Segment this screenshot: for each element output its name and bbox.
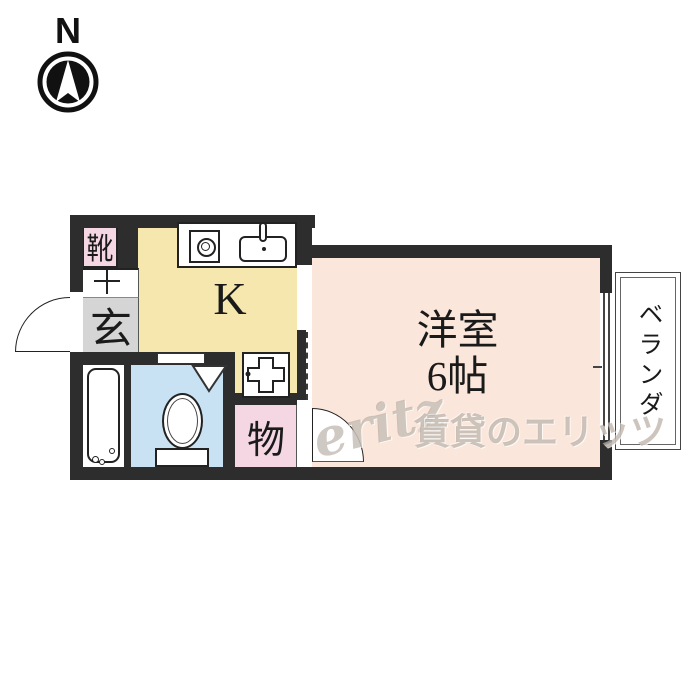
washing-machine-pan-icon xyxy=(242,352,290,398)
wall-right-upper xyxy=(600,245,612,293)
toilet-tank-icon xyxy=(155,448,209,467)
kitchen-label: K xyxy=(200,272,260,324)
western-room-name: 洋室 xyxy=(417,307,499,353)
entrance-door-swing xyxy=(15,297,70,352)
entrance-step-marker xyxy=(106,269,108,294)
shoe-cabinet-label: 靴 xyxy=(85,226,116,266)
western-room-label: 洋室 6帖 xyxy=(370,306,545,400)
floorplan-canvas: N xyxy=(0,0,700,700)
bathtub-drain-icon xyxy=(109,448,115,454)
storage-label: 物 xyxy=(237,407,295,465)
partition-dashed-line xyxy=(306,332,310,400)
wall-left-lower xyxy=(70,352,83,480)
entrance-inner-door xyxy=(83,268,139,298)
compass-icon xyxy=(36,50,100,114)
bathtub-icon xyxy=(87,368,120,463)
toilet-door-swing-icon xyxy=(191,364,229,394)
window-center-tick xyxy=(593,366,602,368)
toilet-door xyxy=(157,353,205,364)
wall-partition-top xyxy=(297,215,312,265)
watermark-text: 賃貸のエリッツ xyxy=(414,403,666,455)
wall-partition-stub xyxy=(297,330,306,400)
wall-top-right xyxy=(300,245,612,258)
bath-faucet-icon xyxy=(92,456,99,463)
compass-north-label: N xyxy=(50,10,86,50)
faucet-icon xyxy=(259,222,267,242)
kitchen-counter xyxy=(177,222,297,268)
entrance-label: 玄 xyxy=(86,300,136,350)
wall-bath-toilet-divider xyxy=(124,365,131,467)
stove-icon xyxy=(189,230,220,263)
wall-left-upper xyxy=(70,215,83,292)
toilet-icon xyxy=(162,393,203,449)
wall-shoe-cabinet-right xyxy=(118,222,138,268)
wall-bottom xyxy=(70,467,612,480)
